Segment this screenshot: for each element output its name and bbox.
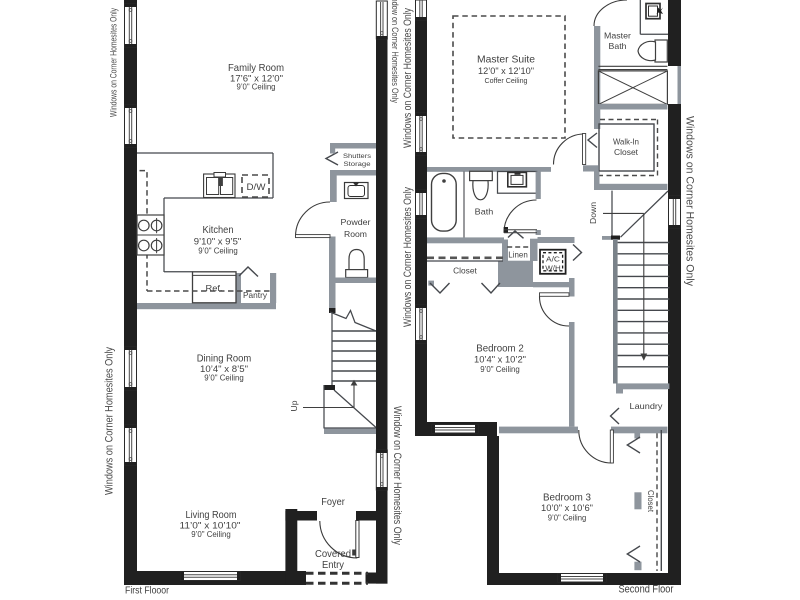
svg-text:Linen: Linen bbox=[508, 251, 528, 260]
svg-text:Walk-In: Walk-In bbox=[613, 137, 639, 147]
svg-text:Window on Corner Homesites Onl: Window on Corner Homesites Only bbox=[391, 406, 403, 545]
svg-text:10’4" x 10’2": 10’4" x 10’2" bbox=[474, 354, 526, 365]
svg-text:Powder: Powder bbox=[341, 217, 371, 227]
svg-text:9’0" Ceiling: 9’0" Ceiling bbox=[204, 373, 244, 382]
svg-text:Bath: Bath bbox=[609, 41, 627, 51]
svg-text:Room: Room bbox=[344, 229, 367, 239]
svg-text:Covered: Covered bbox=[315, 549, 351, 560]
svg-text:Shutters: Shutters bbox=[343, 153, 372, 160]
svg-text:10’0" x 10’6": 10’0" x 10’6" bbox=[541, 503, 593, 514]
svg-text:9’0" Ceiling: 9’0" Ceiling bbox=[191, 530, 231, 539]
svg-text:Coffer Ceiling: Coffer Ceiling bbox=[485, 76, 528, 85]
svg-text:Storage: Storage bbox=[344, 161, 371, 168]
svg-text:Down: Down bbox=[589, 202, 598, 224]
svg-text:Closet: Closet bbox=[646, 490, 655, 513]
svg-text:Up: Up bbox=[289, 400, 299, 411]
svg-text:Windows on Corner Homesites On: Windows on Corner Homesites Only bbox=[104, 347, 116, 495]
svg-text:Windows on Corner Homesites On: Windows on Corner Homesites Only bbox=[109, 8, 120, 117]
svg-text:Closet: Closet bbox=[614, 147, 639, 157]
svg-text:Second Floor: Second Floor bbox=[619, 583, 674, 595]
svg-text:9’0" Ceiling: 9’0" Ceiling bbox=[548, 513, 587, 522]
svg-text:9’0" Ceiling: 9’0" Ceiling bbox=[198, 246, 238, 255]
svg-text:W/H: W/H bbox=[545, 264, 561, 273]
svg-text:Foyer: Foyer bbox=[321, 497, 345, 508]
svg-text:Windows on Corner Homesites On: Windows on Corner Homesites Only bbox=[402, 187, 414, 327]
svg-text:First Flooor: First Flooor bbox=[125, 585, 169, 597]
svg-text:A/C: A/C bbox=[546, 255, 561, 264]
svg-text:9’0" Ceiling: 9’0" Ceiling bbox=[480, 365, 520, 374]
svg-text:9’0" Ceiling: 9’0" Ceiling bbox=[237, 82, 276, 91]
svg-text:Bedroom 2: Bedroom 2 bbox=[476, 343, 524, 355]
svg-text:Kitchen: Kitchen bbox=[203, 224, 234, 236]
svg-text:Windows on Corner Homesites On: Windows on Corner Homesites Only bbox=[684, 116, 696, 286]
svg-text:D/W: D/W bbox=[247, 182, 267, 192]
svg-text:Entry: Entry bbox=[322, 560, 344, 571]
svg-text:Closet: Closet bbox=[453, 266, 477, 276]
svg-text:12’0" x 12’10": 12’0" x 12’10" bbox=[478, 66, 534, 76]
svg-text:Bath: Bath bbox=[475, 207, 494, 217]
svg-text:Master Suite: Master Suite bbox=[477, 54, 535, 66]
svg-text:Window on Corner Homesites Onl: Window on Corner Homesites Only bbox=[389, 0, 400, 103]
svg-text:Windows on Corner Homesites On: Windows on Corner Homesites Only bbox=[402, 8, 414, 148]
svg-text:Master: Master bbox=[604, 31, 631, 41]
svg-text:Laundry: Laundry bbox=[630, 401, 664, 411]
